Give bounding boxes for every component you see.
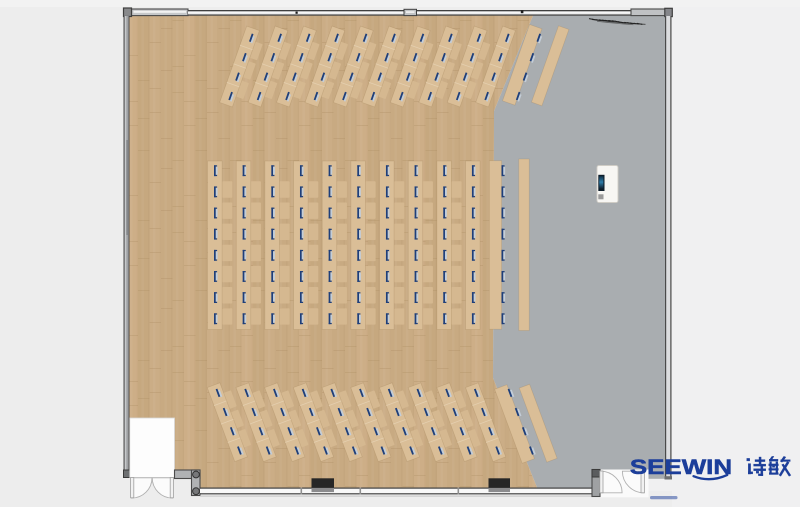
svg-text:SEEWIN: SEEWIN [630, 455, 732, 479]
